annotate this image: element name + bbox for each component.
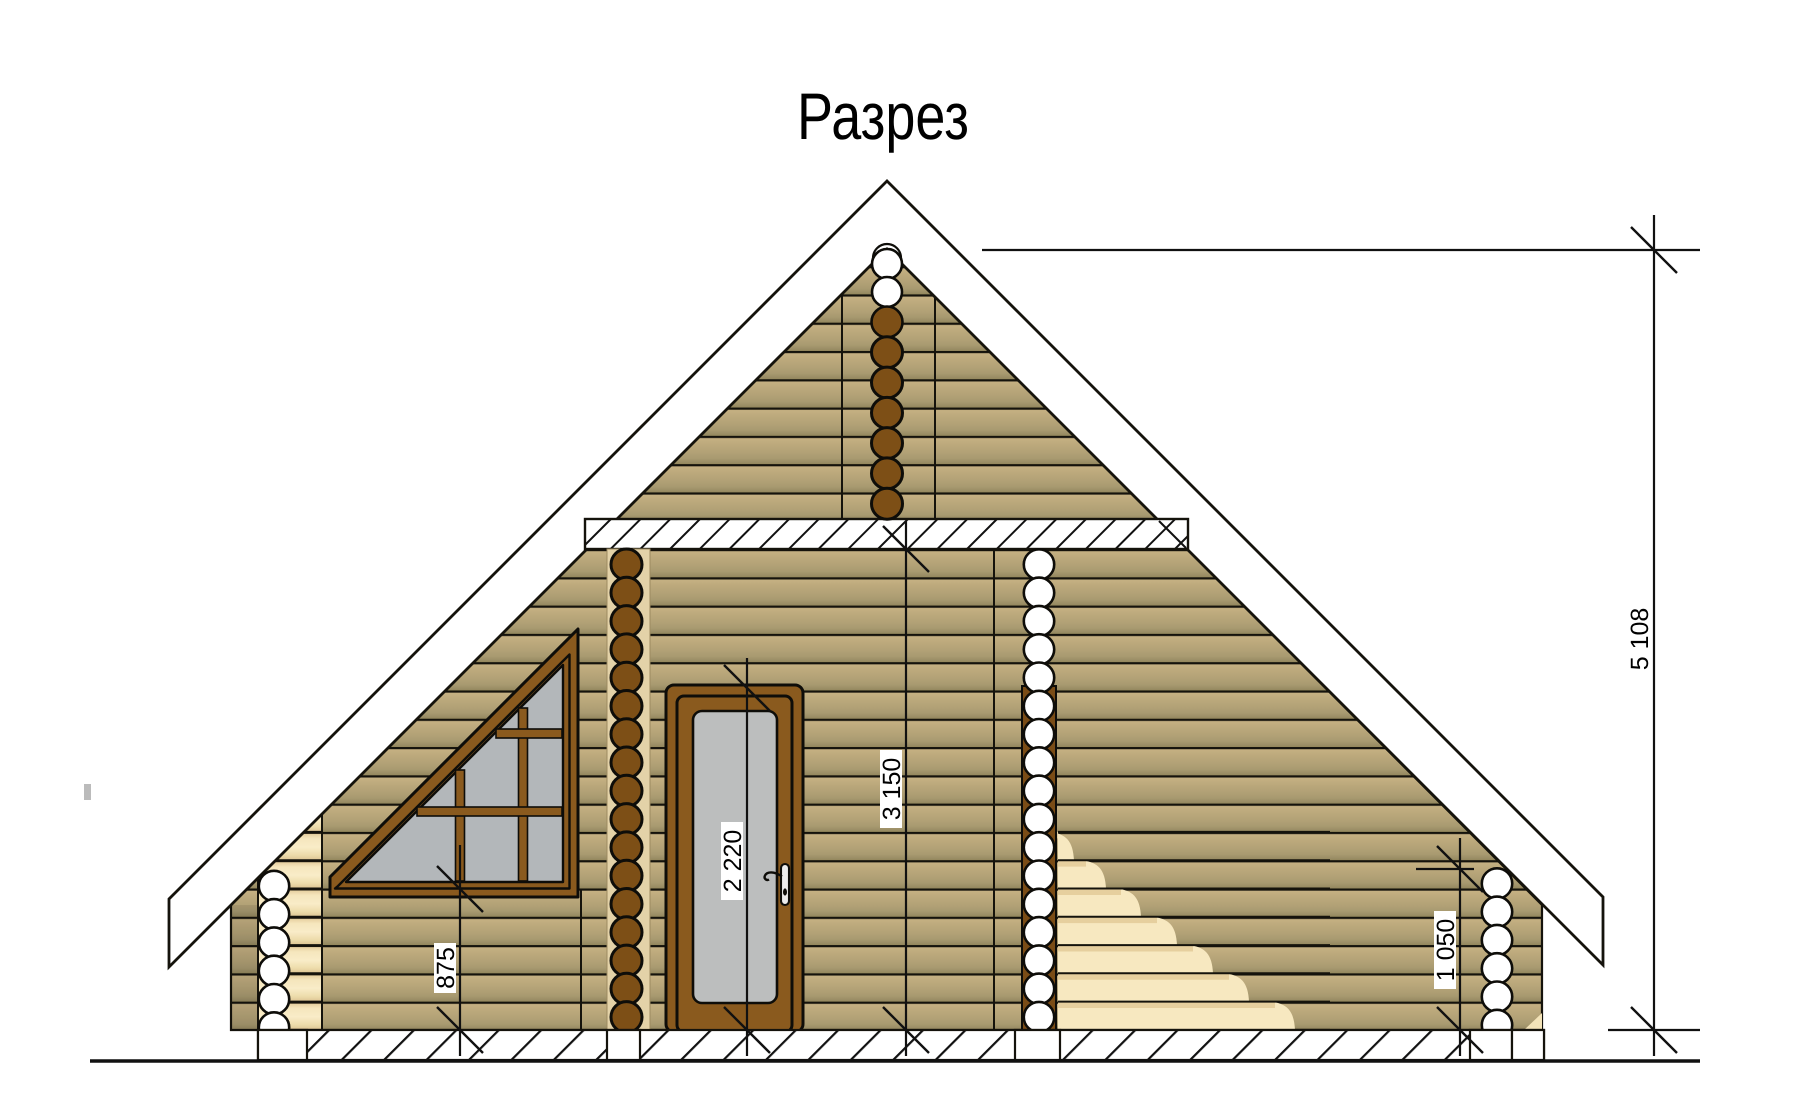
svg-text:2 220: 2 220	[719, 830, 747, 893]
svg-text:875: 875	[432, 947, 460, 989]
svg-text:Разрез: Разрез	[797, 79, 969, 153]
svg-text:1 050: 1 050	[1432, 919, 1460, 982]
svg-text:3 150: 3 150	[878, 758, 906, 821]
svg-text:5 108: 5 108	[1626, 608, 1654, 671]
